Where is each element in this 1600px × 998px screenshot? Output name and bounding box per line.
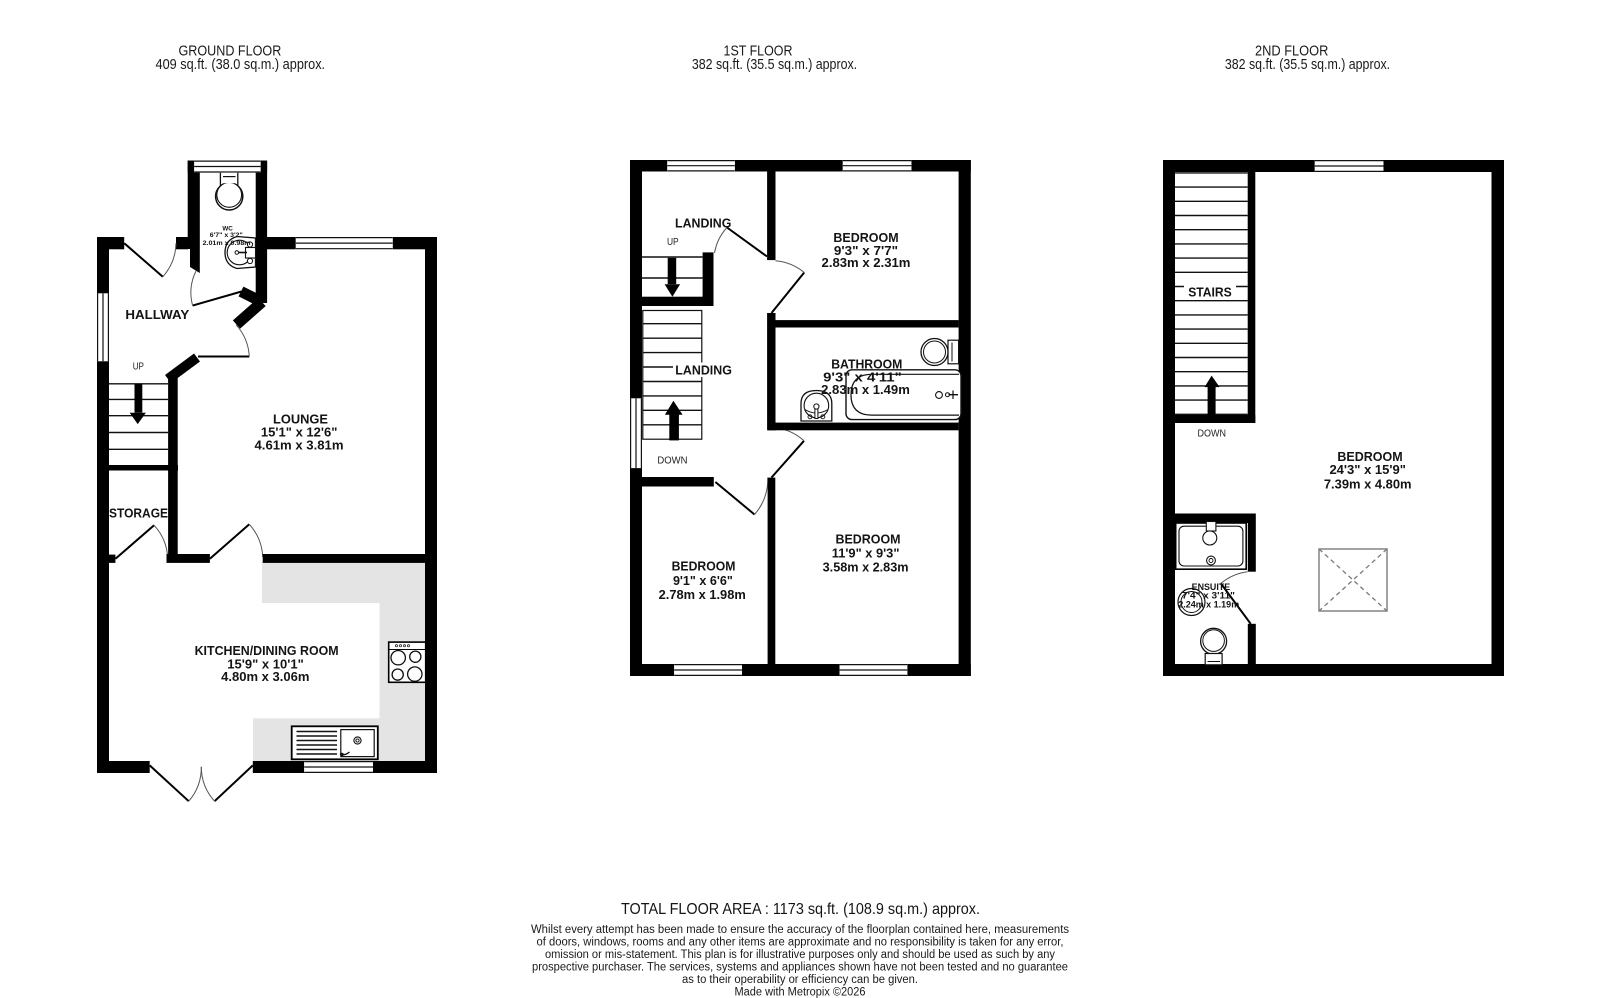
svg-text:382 sq.ft. (35.5 sq.m.) approx: 382 sq.ft. (35.5 sq.m.) approx. (1225, 56, 1390, 73)
svg-text:Made with Metropix ©2026: Made with Metropix ©2026 (735, 987, 866, 998)
svg-text:as to their operability or eff: as to their operability or efficiency ca… (682, 974, 918, 986)
svg-text:2.83m x 2.31m: 2.83m x 2.31m (822, 255, 911, 270)
svg-text:2.78m x 1.98m: 2.78m x 1.98m (659, 587, 746, 602)
svg-text:LANDING: LANDING (675, 363, 732, 378)
svg-text:LANDING: LANDING (675, 216, 731, 231)
svg-text:3.58m x 2.83m: 3.58m x 2.83m (823, 560, 909, 575)
svg-text:DOWN: DOWN (657, 456, 687, 467)
svg-text:4.61m x 3.81m: 4.61m x 3.81m (255, 438, 344, 453)
svg-text:2.01m x 0.98m: 2.01m x 0.98m (203, 240, 251, 247)
svg-text:11'9" x 9'3": 11'9" x 9'3" (832, 546, 900, 561)
svg-text:6'7" x 3'2": 6'7" x 3'2" (210, 232, 243, 239)
svg-text:DOWN: DOWN (1198, 429, 1227, 440)
svg-text:TOTAL FLOOR AREA : 1173 sq.ft.: TOTAL FLOOR AREA : 1173 sq.ft. (108.9 sq… (621, 901, 980, 918)
svg-text:of doors, windows, rooms and a: of doors, windows, rooms and any other i… (537, 937, 1064, 949)
svg-text:382 sq.ft. (35.5 sq.m.) approx: 382 sq.ft. (35.5 sq.m.) approx. (692, 56, 857, 73)
svg-text:Whilst every attempt has been: Whilst every attempt has been made to en… (531, 924, 1069, 936)
svg-text:STORAGE: STORAGE (109, 506, 168, 521)
svg-text:STAIRS: STAIRS (1188, 285, 1232, 300)
svg-text:omission or mis-statement. Thi: omission or mis-statement. This plan is … (545, 949, 1055, 961)
svg-text:9'1" x 6'6": 9'1" x 6'6" (673, 573, 733, 588)
svg-text:2.24m x 1.19m: 2.24m x 1.19m (1178, 600, 1239, 610)
svg-text:4.80m x 3.06m: 4.80m x 3.06m (221, 669, 309, 684)
svg-text:24'3" x 15'9": 24'3" x 15'9" (1329, 462, 1406, 477)
svg-text:BEDROOM: BEDROOM (672, 559, 736, 574)
svg-text:409 sq.ft. (38.0 sq.m.) approx: 409 sq.ft. (38.0 sq.m.) approx. (156, 56, 326, 73)
svg-text:7.39m x 4.80m: 7.39m x 4.80m (1324, 477, 1412, 492)
svg-text:HALLWAY: HALLWAY (125, 307, 189, 322)
svg-text:prospective purchaser. The ser: prospective purchaser. The services, sys… (532, 962, 1068, 974)
svg-text:UP: UP (133, 362, 144, 373)
svg-text:UP: UP (667, 237, 679, 248)
svg-text:2.83m x 1.49m: 2.83m x 1.49m (821, 382, 910, 397)
svg-text:BEDROOM: BEDROOM (835, 532, 900, 547)
